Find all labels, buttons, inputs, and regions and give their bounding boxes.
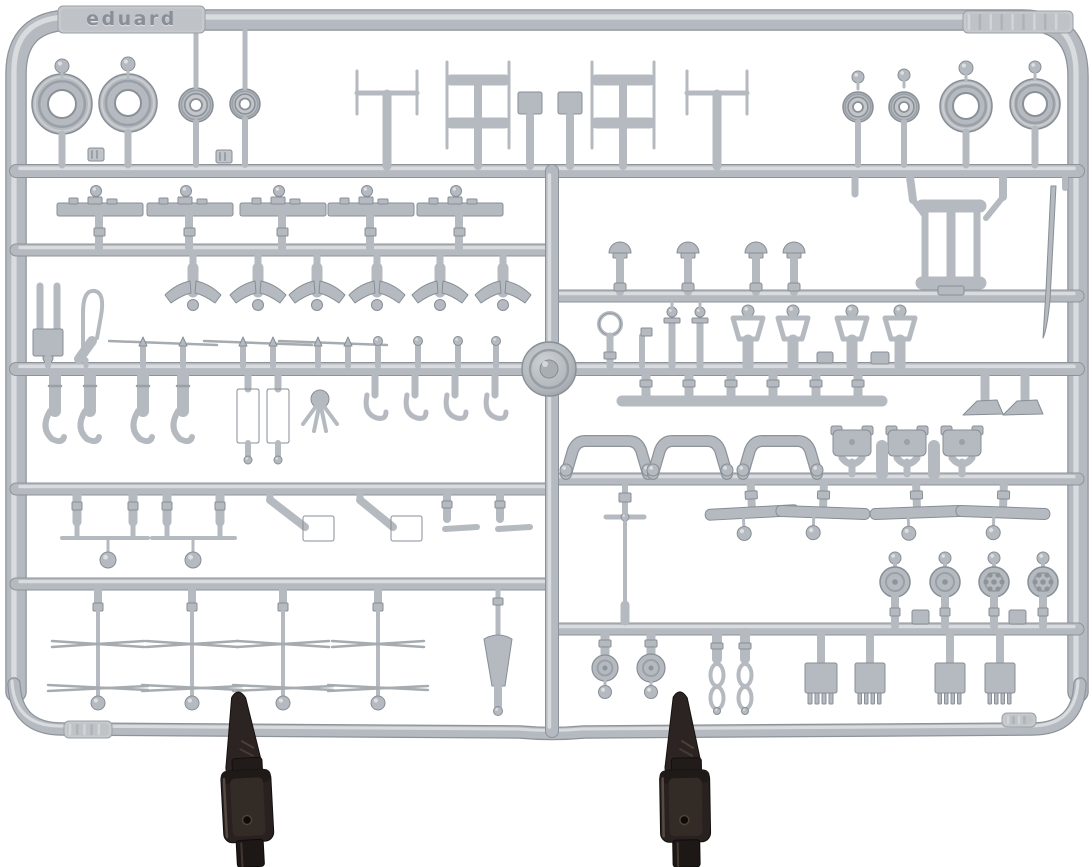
shape [941,554,945,558]
shape [599,686,612,699]
shape [241,843,242,866]
shape [493,338,496,341]
shape [365,228,376,236]
shape [744,307,748,311]
shape [711,664,724,686]
shape [128,502,138,510]
shape [93,187,96,190]
shape [871,352,889,364]
sprue-photo-canvas: Grey injection-moulded plastic model kit… [0,0,1092,867]
shape [822,693,826,704]
shape [958,693,962,704]
shape [451,186,462,197]
shape [340,198,349,204]
shape [495,708,498,711]
mastP-parts [518,92,582,166]
shape [181,186,192,197]
shape [959,61,973,75]
shape [91,696,105,710]
shape [48,90,76,118]
shape [986,525,1000,539]
shape [558,92,582,114]
shape [647,688,651,692]
brand-label: eduard [86,8,177,30]
shape [787,305,799,317]
head-parts [831,426,983,474]
shape [900,71,904,75]
shape [279,698,283,702]
shape [375,338,378,341]
bridge-parts [560,441,823,476]
shape [1009,610,1026,624]
shape [103,555,108,560]
shape [94,698,98,702]
shape [995,572,1000,577]
shape [854,73,858,77]
shape [789,307,793,311]
shape [810,380,822,387]
shape [745,242,767,253]
shape [743,709,745,711]
shape [109,341,217,345]
shape [788,283,800,291]
shape [188,555,193,560]
shape [846,305,858,317]
shape [951,693,955,704]
shape [374,698,378,702]
shape [935,663,965,693]
shape [959,439,965,445]
shape [739,466,743,470]
shape [185,696,199,710]
shape [750,283,762,291]
bar-pin-part [775,482,871,541]
shape [767,380,779,387]
wire-parts [79,291,102,366]
shape [242,815,251,824]
shape [987,572,992,577]
shape [725,380,737,387]
shape [274,456,282,464]
shape [190,99,202,111]
shape [989,608,999,616]
shape [647,464,659,476]
shape [855,663,885,693]
shape [72,502,82,510]
shape [599,640,611,647]
shape [344,337,352,346]
shape [378,199,388,204]
shape [912,610,929,624]
mold-mark-tab [1002,713,1036,727]
spider-parts [303,390,337,431]
shape [415,338,418,341]
injection-hub [522,342,576,396]
shape [362,186,373,197]
shape [267,389,289,443]
shape [445,527,477,529]
shape [1029,61,1041,73]
shape [990,554,994,558]
shape [435,300,446,311]
shape [188,698,192,702]
shape [664,318,680,323]
shape [806,525,820,539]
shape [692,318,708,323]
shape [891,554,895,558]
shape [902,526,916,540]
proppin-parts [606,484,644,621]
shape [966,14,1070,31]
shape [601,688,605,692]
hubwheel-parts [179,88,919,122]
bar-pin-part [955,482,1051,541]
shape [1036,572,1041,577]
shape [742,305,754,317]
tpin-parts [442,494,530,529]
shape [614,283,626,291]
shape [442,281,468,303]
shape [55,59,69,73]
shape [486,395,506,418]
shape [495,501,505,508]
shape [1048,579,1053,584]
shape [870,505,964,519]
shape [649,466,653,470]
shape [1003,400,1043,415]
shape [776,505,870,519]
shape [896,307,900,311]
shape [865,693,869,704]
shape [67,724,109,736]
shape [312,300,323,311]
shape [290,199,300,204]
shape [252,198,261,204]
shape [739,643,751,649]
shape [518,92,542,114]
shape [1036,586,1041,591]
shape [1043,186,1056,338]
shape [184,228,195,236]
shape [619,493,631,502]
shape [453,187,456,190]
shape [640,380,652,387]
shape [604,352,616,359]
mastT-parts [357,71,747,166]
shape [663,778,664,836]
shape [159,198,168,204]
shape [711,643,723,649]
shape [987,586,992,591]
shape [215,502,225,510]
shape [492,337,501,346]
shape [406,395,426,418]
shape [289,281,315,303]
shape [100,552,116,568]
shape [493,598,503,605]
shape [124,59,128,63]
chain-parts [711,633,752,715]
rectframe-parts [237,374,289,464]
shape [858,693,862,704]
pitot-parts [109,337,387,366]
shape [805,663,837,693]
shape [230,777,266,837]
shape [494,707,503,716]
fork-parts [33,286,63,366]
shape [183,187,186,190]
shape [962,63,966,67]
shape [244,456,252,464]
shape [808,693,812,704]
shape [983,579,988,584]
shape [270,500,305,527]
shape [878,693,882,704]
shape [319,281,345,303]
shape [898,69,910,81]
shape [711,687,724,709]
shape [645,686,658,699]
shape [467,199,477,204]
shape [276,457,278,459]
shape [894,305,906,317]
shape [366,395,386,418]
hookpin-parts [366,374,506,418]
shape [815,693,819,704]
yoke-parts [165,255,531,311]
shape [498,300,509,311]
shape [817,491,829,499]
shape [852,380,864,387]
shape [938,693,942,704]
smallwheel-parts [880,552,1058,626]
shape [454,337,463,346]
shape [852,71,864,83]
shape [484,635,512,686]
shape [988,693,992,704]
candle-parts [664,303,708,366]
shape [829,693,833,704]
mushroom-parts [609,242,805,292]
shape [1039,554,1043,558]
shape [1040,579,1046,585]
shape [892,579,898,585]
shape [715,709,717,711]
shape [178,197,192,204]
shape [379,281,405,303]
shape [185,552,201,568]
shape [58,61,62,65]
shape [429,198,438,204]
shape [360,500,393,527]
barpin-parts [704,482,1051,543]
shape [269,337,277,346]
shape [505,281,531,303]
shape [811,464,823,476]
shape [454,228,465,236]
shape [871,693,875,704]
pinpair-parts [62,494,235,568]
shape [682,283,694,291]
shape [195,281,221,303]
shape [237,389,259,443]
shape [412,281,438,303]
bar-pin-part [869,482,965,541]
shape [276,187,279,190]
shape [88,197,102,204]
shape [1023,92,1047,116]
shape [940,608,950,616]
shape [904,439,910,445]
shape [742,708,749,715]
shape [899,102,909,112]
shape [1032,579,1037,584]
blade-parts [1043,186,1056,338]
shape [853,102,863,112]
shape [745,491,757,500]
shape [414,337,423,346]
mold-mark-tab [64,721,112,738]
claw-parts [45,374,192,441]
shape [609,242,631,253]
shape [277,228,288,236]
grille-parts [805,634,1015,704]
knobstem-parts [374,337,501,367]
shape [723,466,727,470]
shape [271,197,285,204]
mastH-parts [447,62,654,166]
shape [1038,608,1048,616]
shape [1044,586,1049,591]
shape [683,380,695,387]
shape [91,186,102,197]
shape [448,197,462,204]
shape [783,242,805,253]
shape [121,57,135,71]
shape [475,281,501,303]
shape [641,328,652,336]
ringpart-parts [599,313,621,366]
shape [446,395,466,418]
shape [737,526,752,541]
shape [813,466,817,470]
shape [274,186,285,197]
shape [603,666,608,671]
shape [498,527,530,529]
shape [910,491,922,499]
shape [714,708,721,715]
zstrut-parts [270,494,422,541]
clip-stands [216,691,711,867]
shape [848,307,852,311]
shape [1008,693,1012,704]
product-photo: Grey injection-moulded plastic model kit… [0,0,1092,867]
shape [240,99,251,110]
shape [33,329,63,356]
shape [246,457,248,459]
shape [985,663,1015,693]
shape [910,177,913,200]
shape [737,464,749,476]
shape [188,300,199,311]
number-plate [88,148,104,161]
shape [372,300,383,311]
shape [999,579,1004,584]
shape [938,286,964,295]
shape [739,687,752,709]
flagpart-parts [641,328,652,366]
shape [997,491,1009,499]
shape [542,361,548,367]
shape [455,338,458,341]
shape [739,664,752,686]
shape [649,666,654,671]
shape [371,696,385,710]
shape [115,90,141,116]
disc-parts [592,634,665,699]
shape [79,341,92,359]
shape [849,439,855,445]
shape [107,199,117,204]
brand-tab: eduardeduard [58,6,205,33]
shape [942,579,948,585]
shape [599,313,621,335]
panel-parts [57,186,503,249]
shape [230,281,256,303]
shape [349,281,375,303]
shape [364,187,367,190]
shape [995,693,999,704]
shape [890,608,900,616]
shape [94,228,105,236]
mold-mark-tab [963,11,1073,33]
shape [69,198,78,204]
shape [253,300,264,311]
wedge-parts [963,374,1043,415]
shape [669,778,703,837]
shape [721,464,733,476]
shape [237,389,259,443]
shape [677,242,699,253]
shape [359,197,373,204]
shape [1001,693,1005,704]
shape [991,579,997,585]
shape [956,505,1050,519]
bracket-parts [622,374,882,401]
number-plate [216,150,232,163]
shape [276,696,290,710]
shape [995,586,1000,591]
shape [260,281,286,303]
shape [267,389,289,443]
shape [162,502,172,510]
hframe-parts [910,177,1003,295]
shape [165,281,191,303]
shape [197,199,207,204]
shape [374,337,383,346]
stand-clip [658,691,711,867]
shape [179,337,187,346]
shape [945,693,949,704]
shape [963,400,1003,415]
shape [442,501,452,508]
shape [1044,572,1049,577]
funnel-parts [484,589,512,716]
shape [680,815,689,824]
shape [562,466,566,470]
shape [645,640,657,647]
shape [986,197,1003,218]
